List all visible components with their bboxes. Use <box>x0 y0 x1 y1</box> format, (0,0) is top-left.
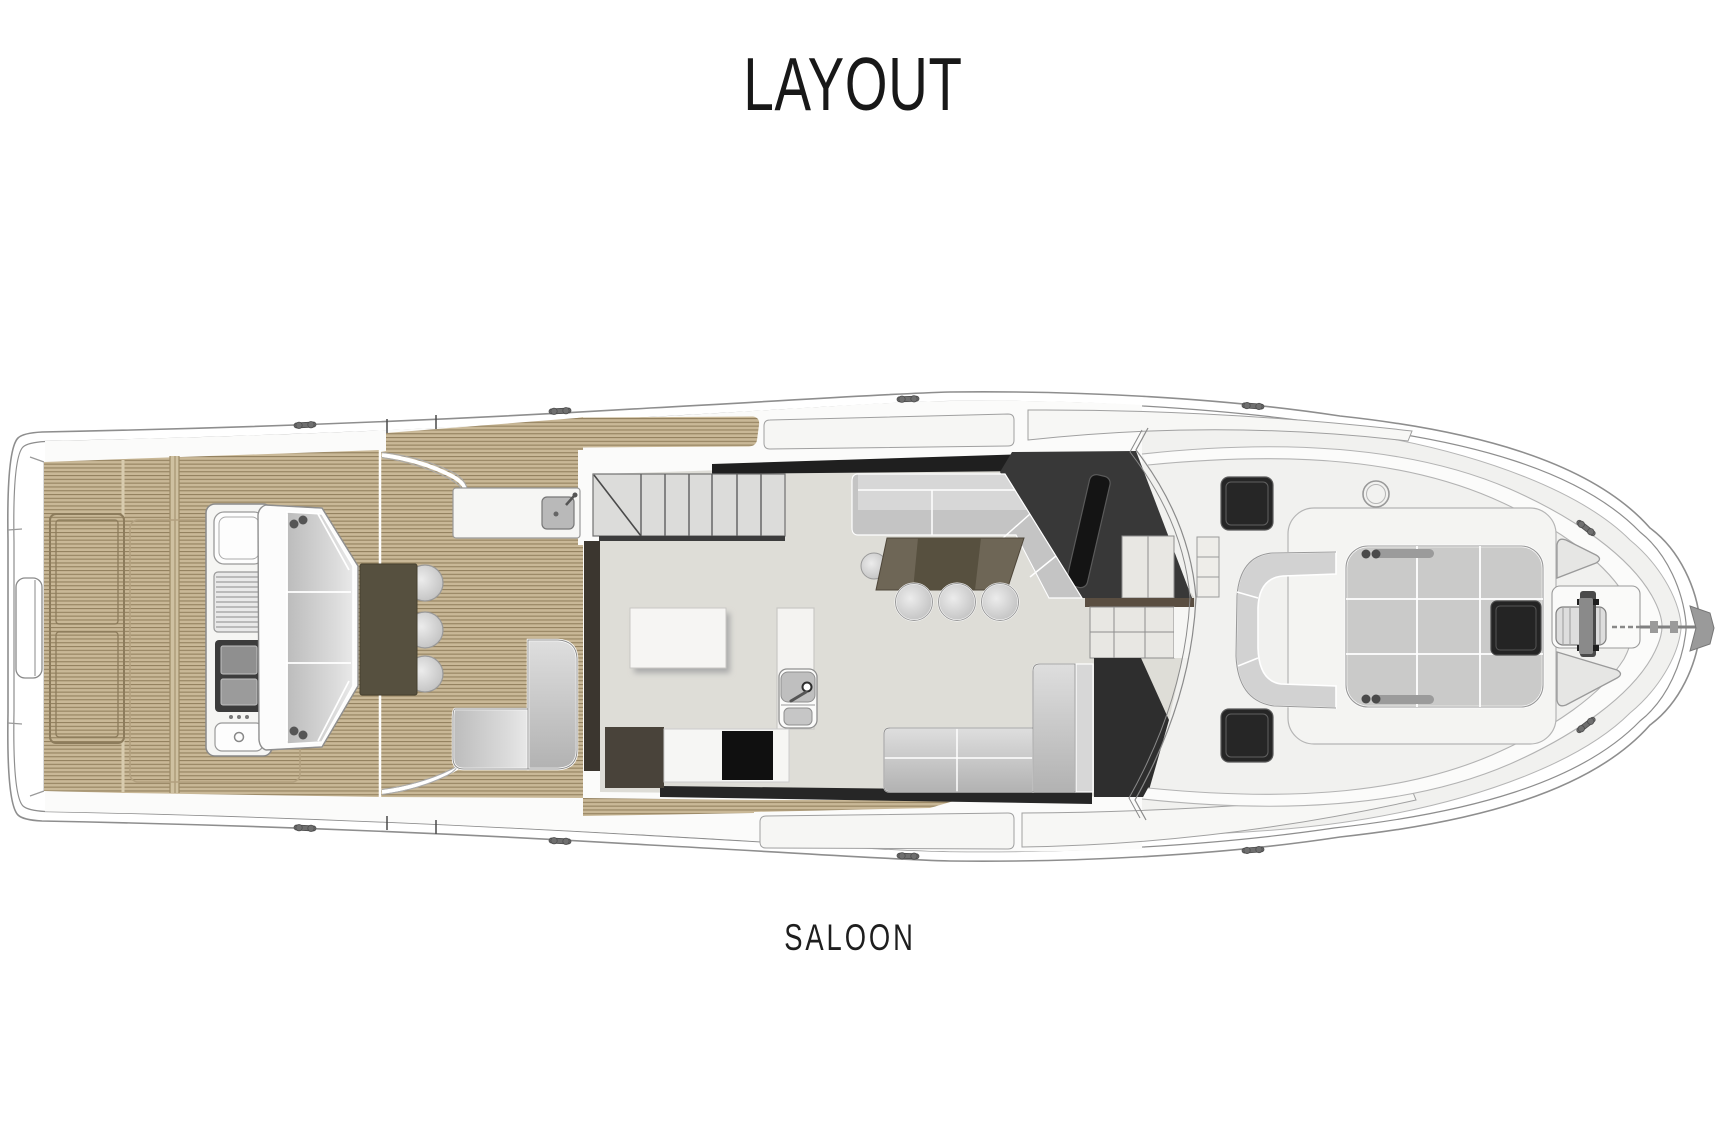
svg-text:SALOON: SALOON <box>784 916 916 958</box>
svg-text:LAYOUT: LAYOUT <box>743 43 962 126</box>
